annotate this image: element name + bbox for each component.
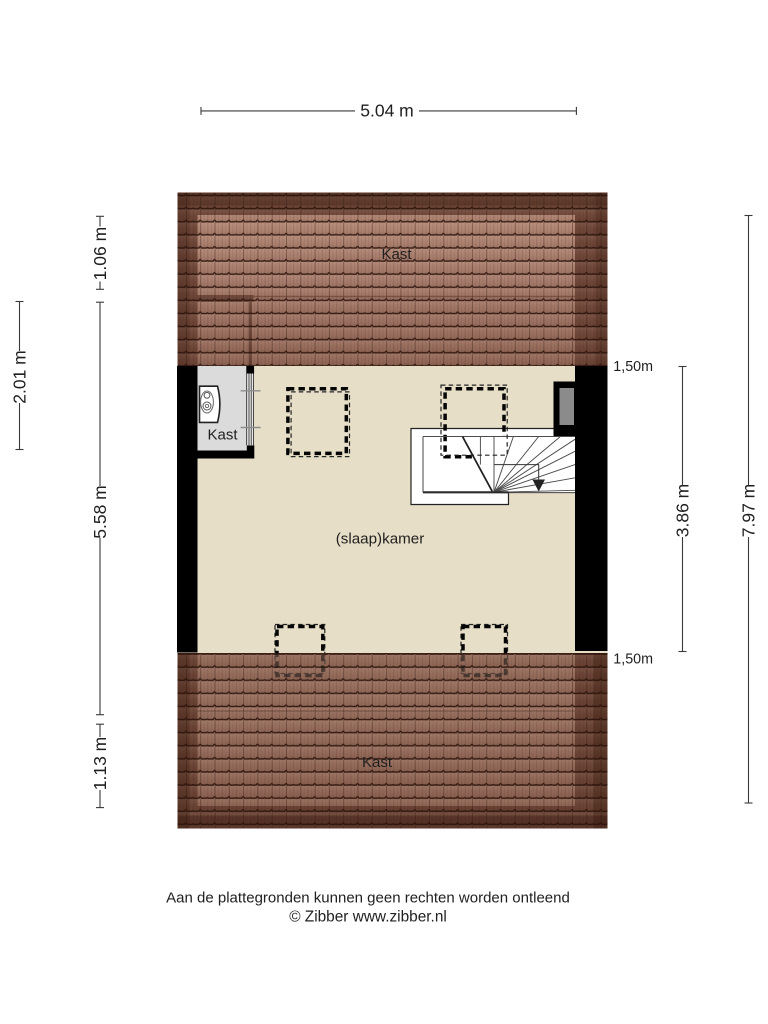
svg-text:1,50m: 1,50m — [613, 652, 653, 668]
svg-text:Kast: Kast — [362, 754, 393, 771]
svg-text:© Zibber www.zibber.nl: © Zibber www.zibber.nl — [289, 909, 447, 926]
svg-text:(slaap)kamer: (slaap)kamer — [336, 531, 425, 548]
svg-text:Aan de plattegronden kunnen ge: Aan de plattegronden kunnen geen rechten… — [166, 890, 570, 907]
svg-text:1.06 m: 1.06 m — [90, 227, 110, 281]
svg-text:1.13 m: 1.13 m — [90, 737, 110, 791]
svg-text:2.01 m: 2.01 m — [10, 350, 30, 404]
svg-text:1,50m: 1,50m — [613, 359, 653, 375]
svg-text:5.58 m: 5.58 m — [90, 485, 110, 539]
svg-text:5.04 m: 5.04 m — [360, 101, 414, 121]
svg-text:Kast: Kast — [207, 427, 238, 444]
svg-text:7.97 m: 7.97 m — [739, 484, 759, 538]
svg-text:3.86 m: 3.86 m — [673, 484, 693, 538]
svg-text:Kast: Kast — [381, 246, 412, 263]
